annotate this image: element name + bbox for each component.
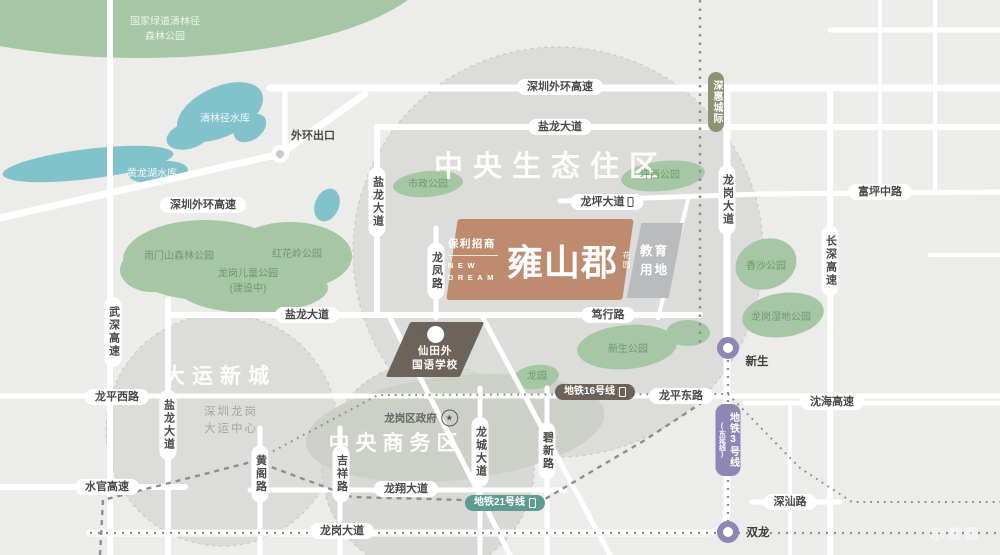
- school-icon: [427, 326, 444, 343]
- huanglonghu-reservoir-label: 黄龙湖水库: [127, 165, 177, 180]
- shenhui-intercity: 深惠城际: [708, 72, 724, 132]
- government-star-icon: ★: [441, 410, 458, 427]
- road-label-jixiang-road: 吉祥路: [333, 446, 350, 503]
- road-label-longgang-avenue-south: 龙岗大道: [310, 523, 374, 539]
- xinsheng-park-label: 新生公园: [608, 343, 648, 358]
- station-shuanglong-label: 双龙: [747, 524, 770, 540]
- pingxi-park-label: 坪西公园: [640, 169, 680, 184]
- road-label-longping-east-road: 龙平东路: [649, 388, 713, 404]
- metro-logo-icon: [529, 498, 536, 508]
- qinglinjing-reservoir-label: 清林径水库: [200, 110, 250, 125]
- station-shuanglong-marker: [717, 521, 739, 543]
- road-label-shuiguan-expwy: 水官高速: [75, 479, 139, 495]
- road-label-yanlong-avenue-north: 盐龙大道: [369, 167, 386, 237]
- longgang-children-park-label: 龙岗儿童公园(建设中): [218, 268, 278, 297]
- road-label-longfeng-road: 龙凤路: [428, 243, 445, 300]
- road-label-bixin-road: 碧新路: [539, 423, 556, 480]
- road-label-huangge-road: 黄阁路: [252, 446, 269, 503]
- road-label-yanlong-avenue-mid: 盐龙大道: [275, 307, 339, 323]
- road-label-shenhai-expwy: 沈海高速: [800, 394, 864, 410]
- road-label-changshen-expwy: 长深高速: [822, 226, 839, 296]
- metro-logo-icon: [619, 387, 626, 397]
- dayun-center-note: 深圳龙岗大运中心: [204, 404, 258, 439]
- road-label-longping-avenue: 龙坪大道: [571, 194, 644, 210]
- watermark: 示意图: [931, 524, 982, 544]
- road-label-longxiang-avenue: 龙翔大道: [374, 481, 438, 497]
- station-xinsheng-label: 新生: [746, 353, 769, 369]
- road-label-shenzhen-outer-ring-expwy-top: 深圳外环高速: [517, 79, 603, 95]
- xiangsha-park-label: 香沙公园: [746, 260, 786, 275]
- road-label-shenshan-road: 深汕路: [764, 494, 817, 510]
- road-label-longgang-avenue-north: 龙岗大道: [719, 165, 736, 235]
- longyuan-park-label: 龙园: [527, 370, 547, 385]
- road-label-yanlong-avenue-south: 盐龙大道: [160, 390, 177, 460]
- road-label-shenzhen-outer-ring-expwy-left: 深圳外环高速: [160, 197, 246, 213]
- honghualing-park-label: 红花岭公园: [272, 248, 322, 263]
- yumenshan-forest-park-label: 雨门山森林公园: [144, 250, 214, 265]
- highway-exit-node: [271, 145, 289, 163]
- road-label-longping-west-road: 龙平西路: [85, 389, 149, 405]
- dayun-new-town-label: 大运新城: [164, 364, 276, 390]
- project-name-suffix: 花园: [621, 250, 632, 269]
- road-label-longcheng-avenue: 龙城大道: [472, 417, 489, 487]
- project-slogan-en: NEW DREAM: [448, 260, 498, 284]
- metro-line-16: 地铁16号线: [555, 384, 635, 400]
- qinglinjing-forest-park-label: 国家绿道清林径森林公园: [130, 16, 200, 45]
- shizheng-park-label: 市政公园: [408, 178, 448, 193]
- central-eco-district-label: 中央生态住区: [434, 149, 668, 185]
- road-label-yanlong-avenue-top: 盐龙大道: [528, 119, 592, 135]
- project-brand: 保利招商: [448, 236, 498, 256]
- road-label-duxing-road: 笃行路: [582, 307, 635, 323]
- government-label: 龙岗区政府 ★: [384, 410, 458, 427]
- road-label-wushen-expwy: 武深高速: [105, 297, 122, 367]
- metro-line-21: 地铁21号线: [465, 495, 545, 511]
- highway-exit-label: 外环出口: [291, 127, 335, 143]
- station-xinsheng-marker: [717, 337, 739, 359]
- metro-logo-icon: [628, 197, 634, 207]
- location-map: 保利招商 NEW DREAM 雍山郡 花园 教育 用地: [0, 0, 1000, 555]
- project-name: 雍山郡: [507, 234, 618, 286]
- metro-line-3: 地铁3号线(东延线): [716, 404, 741, 476]
- road-label-fuping-middle-road: 富坪中路: [848, 184, 912, 200]
- longgang-wetland-park-label: 龙岗湿地公园: [751, 311, 811, 326]
- project-logo-block: 保利招商 NEW DREAM 雍山郡 花园: [446, 219, 633, 300]
